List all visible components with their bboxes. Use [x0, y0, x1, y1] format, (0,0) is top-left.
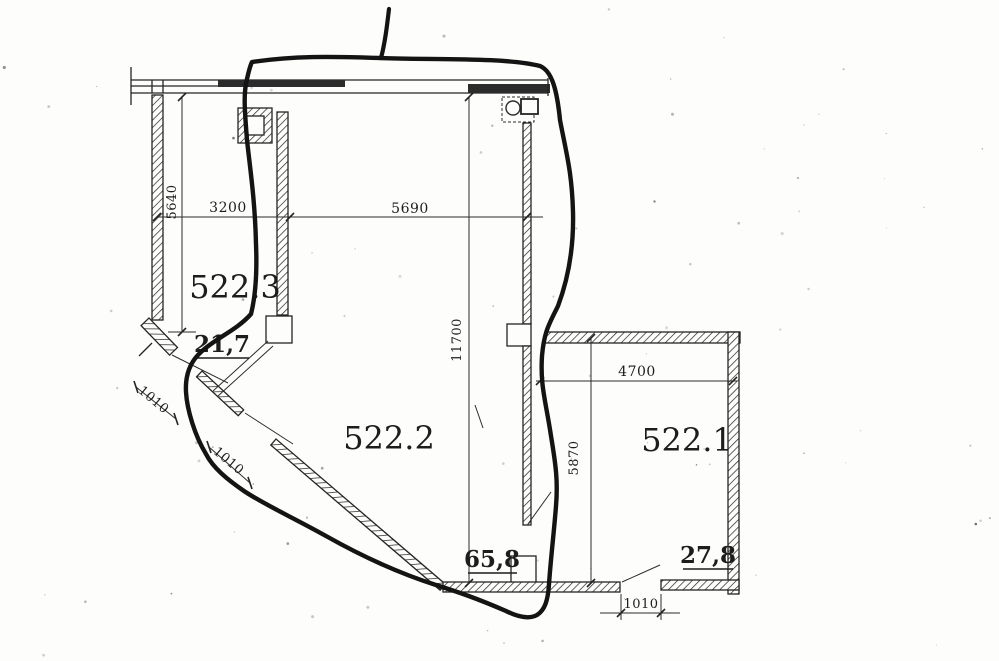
dim-5870: 5870: [567, 440, 582, 475]
wall-left-522-3: [152, 95, 163, 320]
center-wall-box: [507, 324, 531, 346]
wall-left-diagonal-stub: [141, 318, 177, 355]
wall-center-upper: [523, 123, 531, 324]
stray-pen-tick: [475, 405, 483, 428]
room-area-522-2: 65,8: [464, 546, 520, 573]
marker-stub: [381, 9, 389, 58]
scanned-paper-background: 5640 3200 5690 11700 4700 5870 1010 1010…: [0, 0, 999, 661]
wall-top-522-1: [545, 332, 740, 343]
room-labels: 522.3 21,7 522.2 65,8 522.1 27,8: [189, 268, 736, 573]
floor-plan-drawing: 5640 3200 5690 11700 4700 5870 1010 1010…: [0, 0, 999, 661]
top-wall-beam-left: [218, 80, 345, 87]
fixture-symbol: [502, 97, 538, 122]
wall-diagonal-short: [197, 371, 244, 416]
door-hinge-box: [266, 316, 292, 343]
dim-1010-lower: 1010: [210, 444, 247, 478]
wall-bottom-right: [661, 580, 739, 590]
dim-5640: 5640: [165, 184, 180, 219]
wall-center-lower: [523, 346, 531, 525]
marker-annotation: [186, 9, 573, 617]
room-number-522-1: 522.1: [641, 421, 733, 459]
top-wall-beam-right: [468, 84, 550, 93]
dim-4700: 4700: [618, 364, 656, 380]
dim-3200: 3200: [209, 200, 247, 216]
room-number-522-3: 522.3: [189, 268, 281, 306]
dim-11700: 11700: [450, 318, 465, 362]
dim-1010-upper: 1010: [135, 383, 172, 417]
dim-5690: 5690: [391, 201, 429, 217]
dim-1010-bottom: 1010: [623, 597, 658, 612]
wall-diagonal-long: [271, 439, 446, 590]
room-area-522-1: 27,8: [680, 542, 736, 569]
door-swing-lines: [172, 341, 660, 582]
room-number-522-2: 522.2: [343, 419, 435, 457]
